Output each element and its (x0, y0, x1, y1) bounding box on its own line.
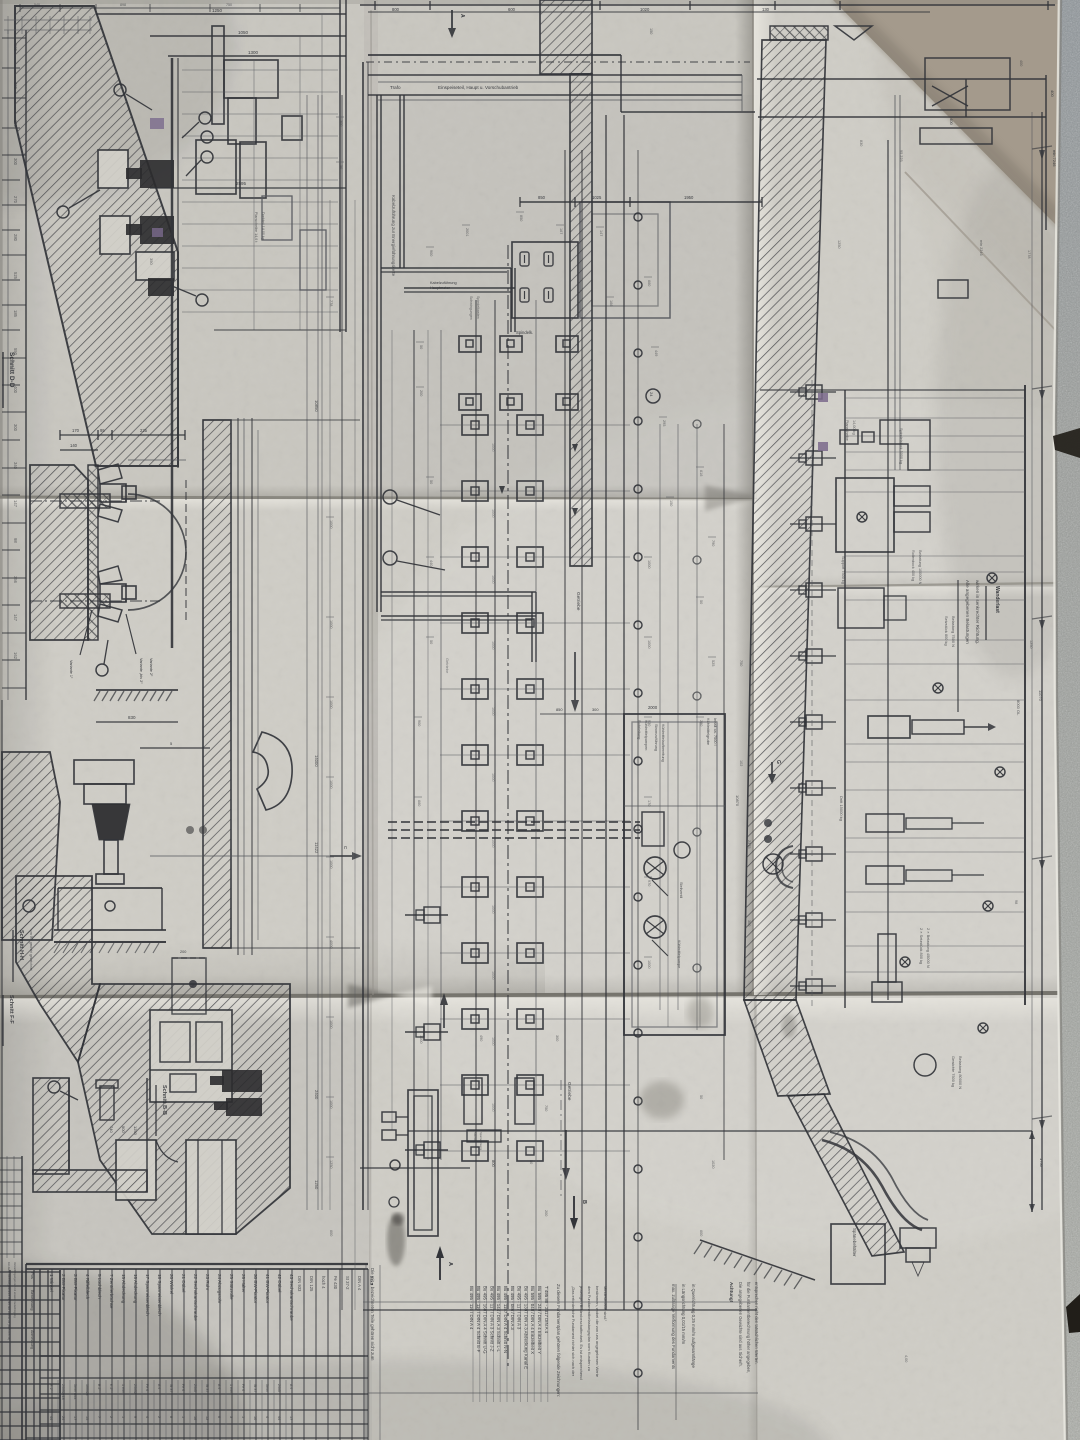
svg-text:Achtung!: Achtung! (729, 1282, 734, 1303)
svg-text:3: 3 (229, 1416, 233, 1418)
svg-text:150: 150 (649, 28, 653, 34)
svg-text:14,00 kg: 14,00 kg (852, 420, 856, 435)
svg-text:24 Abzugsrohr: 24 Abzugsrohr (217, 1274, 222, 1304)
svg-text:Kühlmittelaufbereitung: Kühlmittelaufbereitung (661, 724, 665, 762)
svg-text:17 Spanneisenblech: 17 Spanneisenblech (145, 1274, 150, 1316)
svg-text:50: 50 (699, 1095, 703, 1099)
svg-text:900: 900 (429, 250, 433, 256)
svg-text:Setzstück 800 kg: Setzstück 800 kg (944, 616, 949, 646)
svg-text:Kühlmittelgrube: Kühlmittelgrube (706, 718, 711, 745)
svg-text:800: 800 (491, 1160, 496, 1167)
svg-text:50: 50 (429, 480, 433, 484)
svg-text:778: 778 (329, 300, 333, 306)
svg-text:150: 150 (669, 500, 673, 506)
svg-text:6: 6 (217, 1416, 221, 1418)
svg-text:50: 50 (529, 1160, 533, 1164)
svg-text:167: 167 (559, 228, 563, 234)
svg-text:270: 270 (13, 196, 18, 204)
svg-text:300: 300 (339, 120, 343, 126)
svg-text:3 BW-Fixator: 3 BW-Fixator (73, 1274, 78, 1301)
svg-text:400: 400 (1019, 60, 1023, 66)
svg-text:185: 185 (13, 310, 18, 318)
svg-text:42 Dübel: 42 Dübel (277, 1274, 282, 1292)
svg-text:Schnitt D-D: Schnitt D-D (8, 352, 15, 388)
svg-text:12: 12 (205, 1416, 209, 1420)
svg-text:95 225: 95 225 (899, 150, 903, 162)
svg-text:16: 16 (193, 1416, 197, 1420)
svg-text:1250: 1250 (837, 240, 841, 248)
svg-text:44: 44 (49, 1416, 53, 1420)
svg-text:170: 170 (647, 800, 651, 806)
svg-text:Gewichte 7500 kg: Gewichte 7500 kg (951, 1056, 956, 1087)
svg-text:790: 790 (711, 540, 715, 546)
svg-text:Einspeiseteil, Haupt u. Vorsch: Einspeiseteil, Haupt u. Vorschubantrieb (438, 85, 519, 90)
svg-text:26 Halter: 26 Halter (241, 1274, 246, 1293)
svg-text:A: A (459, 14, 465, 18)
svg-text:449: 449 (654, 350, 658, 356)
svg-text:entsprechen nicht den tatsächl: entsprechen nicht den tatsächlichen Wert… (754, 1282, 759, 1365)
svg-text:Bu 595 - 249 / DIN A 4 Einz: Bu 595 - 249 / DIN A 4 Einzelheit Y (537, 1286, 542, 1354)
svg-text:Spindelstock 5000 kg: Spindelstock 5000 kg (899, 428, 903, 464)
svg-text:1000: 1000 (419, 1035, 423, 1043)
svg-text:Belastung 100000 N: Belastung 100000 N (918, 550, 922, 585)
svg-text:2 × Belastung 45000 N: 2 × Belastung 45000 N (926, 928, 931, 968)
svg-text:600: 600 (329, 1230, 333, 1236)
svg-text:2 BW-Fixator: 2 BW-Fixator (61, 1274, 66, 1301)
svg-text:5 Lochblech: 5 Lochblech (97, 1274, 102, 1299)
svg-text:für die Fundamentberechnung hö: für die Fundamentberechnung höher angege… (746, 1282, 751, 1373)
svg-text:1250: 1250 (1029, 640, 1033, 648)
svg-text:Bu 495 - 1607 DIN A 4 Schni: Bu 495 - 1607 DIN A 4 Schnitt U-G (483, 1286, 488, 1354)
svg-text:102: 102 (739, 760, 743, 766)
svg-text:5mm dick: 5mm dick (73, 1384, 77, 1400)
svg-text:Bu 495 - 117 / DIN A 3: Bu 495 - 117 / DIN A 3 (517, 1286, 522, 1330)
svg-text:Rollenbock 400 kg: Rollenbock 400 kg (911, 550, 915, 581)
svg-text:30 BW-Fixator: 30 BW-Fixator (253, 1274, 258, 1304)
svg-text:Bu 495 - 116 / DIN A 4: Bu 495 - 116 / DIN A 4 (469, 1286, 474, 1330)
svg-text:300: 300 (555, 1035, 559, 1041)
svg-text:1000: 1000 (329, 520, 333, 528)
svg-text:750: 750 (226, 3, 232, 7)
svg-text:min 7246: min 7246 (1052, 150, 1057, 167)
svg-text:16 Abdeckung: 16 Abdeckung (133, 1274, 138, 1304)
svg-text:Variante 1“: Variante 1“ (69, 660, 73, 679)
svg-text:850: 850 (556, 707, 563, 712)
svg-text:50: 50 (699, 600, 703, 604)
svg-text:20 Winkel: 20 Winkel (169, 1274, 174, 1294)
svg-text:850: 850 (519, 215, 523, 221)
svg-text:St 37-2: St 37-2 (345, 1276, 350, 1290)
svg-text:Schnitt B-B: Schnitt B-B (161, 1085, 167, 1115)
svg-text:616: 616 (699, 470, 703, 476)
svg-text:Abmessung: Abmessung (30, 1330, 34, 1349)
svg-text:Fe 430: Fe 430 (333, 1276, 338, 1290)
svg-text:hoch 4: hoch 4 (321, 1276, 326, 1289)
svg-text:930: 930 (647, 720, 651, 726)
svg-text:St 37: St 37 (253, 1384, 257, 1392)
svg-text:44: 44 (277, 1416, 281, 1420)
svg-text:147: 147 (13, 500, 18, 508)
svg-text:Spänebehälter: Spänebehälter (852, 1228, 857, 1257)
svg-text:A 4: A 4 (217, 1384, 221, 1389)
svg-text:B 2": B 2" (97, 1384, 101, 1391)
svg-text:DIN 125: DIN 125 (309, 1276, 314, 1292)
svg-text:Fe 6: Fe 6 (145, 1384, 149, 1391)
svg-text:7: 7 (97, 1416, 101, 1418)
svg-text:Fe 6: Fe 6 (181, 1384, 185, 1391)
svg-text:300: 300 (747, 920, 751, 926)
svg-text:Getriebe: Getriebe (445, 658, 450, 674)
svg-text:1: 1 (181, 1416, 185, 1418)
svg-text:Bu 595 - 048 / DIN A 4 Einz: Bu 595 - 048 / DIN A 4 Einzelheit X (530, 1286, 535, 1354)
svg-text:11070: 11070 (1038, 690, 1043, 702)
svg-text:Alle angegebenen Belastungen: Alle angegebenen Belastungen (965, 580, 970, 644)
svg-text:10: 10 (253, 1416, 257, 1420)
svg-text:4,00: 4,00 (904, 1355, 908, 1362)
svg-text:R 2": R 2" (49, 1384, 53, 1392)
svg-text:21 Dübel: 21 Dübel (181, 1274, 186, 1292)
svg-text:St 37: St 37 (169, 1384, 173, 1392)
svg-text:300: 300 (13, 158, 18, 166)
svg-text:15 Abdeckung: 15 Abdeckung (121, 1274, 126, 1304)
svg-text:98: 98 (13, 538, 18, 543)
svg-text:1250: 1250 (314, 1180, 319, 1190)
svg-text:850: 850 (538, 195, 546, 200)
svg-text:14000: 14000 (314, 755, 319, 767)
svg-text:Spindelk.: Spindelk. (516, 330, 533, 335)
svg-text:1000: 1000 (647, 640, 651, 648)
svg-text:900: 900 (417, 720, 421, 726)
svg-text:Getriebe: Getriebe (566, 1082, 572, 1101)
svg-text:200: 200 (544, 1210, 548, 1216)
svg-text:1 mm: 1 mm (229, 1384, 233, 1393)
svg-text:in Längsrichtung 0,01/15 mm/: in Längsrichtung 0,01/15 mm/m (681, 1284, 686, 1345)
svg-text:A 4: A 4 (289, 1384, 293, 1389)
svg-text:660: 660 (417, 800, 421, 806)
svg-text:Schnitt H-H: Schnitt H-H (18, 930, 24, 960)
svg-text:1250: 1250 (329, 1160, 333, 1168)
svg-text:41 BW-Fixator: 41 BW-Fixator (265, 1274, 270, 1304)
svg-text:280: 280 (13, 234, 18, 242)
svg-text:600: 600 (508, 7, 516, 12)
svg-text:147: 147 (13, 614, 18, 622)
svg-text:525: 525 (13, 272, 18, 280)
svg-text:DIN 933: DIN 933 (297, 1276, 302, 1292)
svg-text:Bu 495 - 1397 DIN A 3 Abdeck: Bu 495 - 1397 DIN A 3 Abdeckung Kanal E (523, 1286, 528, 1369)
svg-text:740: 740 (109, 1126, 114, 1133)
svg-text:600: 600 (699, 1230, 703, 1236)
svg-text:95: 95 (100, 428, 105, 433)
svg-text:800: 800 (392, 7, 400, 12)
svg-text:Bu 495 - 117 / DIN A 3 Schn: Bu 495 - 117 / DIN A 3 Schnitt J-Z (489, 1286, 494, 1352)
svg-text:Stecker: Stecker (473, 1132, 477, 1142)
svg-text:1: 1 (241, 1416, 245, 1418)
svg-text:Inhalt ca. 7500 l: Inhalt ca. 7500 l (713, 718, 718, 746)
svg-text:1: 1 (121, 1416, 125, 1418)
svg-text:K 2": K 2" (109, 1384, 113, 1391)
svg-text:Pos: Pos (30, 1272, 35, 1279)
svg-text:A 4: A 4 (157, 1384, 161, 1389)
svg-text:1 mm: 1 mm (121, 1384, 125, 1393)
svg-text:Spannelemente: Spannelemente (479, 1132, 483, 1151)
svg-text:440: 440 (429, 560, 433, 566)
svg-text:43 Sechskantschraube: 43 Sechskantschraube (289, 1274, 294, 1321)
svg-text:830: 830 (859, 140, 863, 146)
svg-text:166: 166 (609, 300, 613, 306)
svg-text:7 Zentrierbüchse: 7 Zentrierbüchse (109, 1274, 114, 1309)
svg-text:2001: 2001 (465, 228, 469, 236)
svg-text:Kabelzuführung zur Energieführ: Kabelzuführung zur Energieführungskette (391, 195, 396, 277)
svg-text:1000: 1000 (329, 700, 333, 708)
svg-text:Vervielfältigungen nur mit uns: Vervielfältigungen nur mit unserer Geneh… (13, 1262, 17, 1318)
svg-text:1250: 1250 (212, 8, 223, 13)
svg-text:Variante 2“: Variante 2“ (149, 658, 153, 677)
svg-text:Schwingungen: Schwingungen (469, 296, 473, 320)
svg-text:Support 7500 kg: Support 7500 kg (841, 556, 845, 584)
svg-text:24x32: 24x32 (133, 1384, 137, 1394)
svg-text:295: 295 (662, 420, 666, 426)
svg-text:Belastung 80000 N: Belastung 80000 N (958, 1056, 963, 1089)
svg-text:4 Riffelblech: 4 Riffelblech (85, 1274, 90, 1300)
svg-text:970: 970 (647, 880, 651, 886)
svg-text:1000: 1000 (647, 960, 651, 968)
svg-text:2: 2 (109, 1416, 113, 1418)
svg-text:660: 660 (647, 280, 651, 286)
svg-text:Wanderlast: Wanderlast (994, 586, 1000, 613)
svg-text:2375: 2375 (747, 840, 751, 848)
svg-text:Getriebe: Getriebe (575, 592, 581, 611)
svg-text:1778: 1778 (1027, 250, 1031, 258)
svg-text:18 Spanneisenblech: 18 Spanneisenblech (157, 1274, 162, 1316)
svg-text:Bu 495 - 1157 DIN A 4 Schni: Bu 495 - 1157 DIN A 4 Schnitt N-N (503, 1286, 508, 1353)
svg-text:300: 300 (13, 424, 18, 432)
svg-text:340: 340 (13, 462, 18, 470)
svg-text:Planscheibe 14,6 t: Planscheibe 14,6 t (254, 212, 258, 242)
svg-text:4: 4 (265, 1416, 269, 1418)
svg-text:24: 24 (649, 392, 654, 397)
svg-text:300: 300 (592, 707, 599, 712)
svg-text:750: 750 (739, 660, 743, 666)
svg-text:Planscheibe: Planscheibe (845, 420, 849, 441)
svg-text:200: 200 (180, 950, 186, 954)
svg-text:Rohrleitung: Rohrleitung (637, 720, 641, 739)
svg-text:1950: 1950 (684, 195, 694, 200)
svg-text:Schnitt F-F: Schnitt F-F (8, 995, 14, 1024)
svg-text:Bu 495 - 144 / DIN A 3 Schn: Bu 495 - 144 / DIN A 3 Schnitt L-L (496, 1286, 501, 1352)
svg-text:147: 147 (599, 230, 603, 236)
svg-text:Stellventil: Stellventil (679, 882, 683, 898)
svg-text:2: 2 (157, 1416, 161, 1418)
svg-text:2000: 2000 (648, 705, 658, 710)
svg-text:24x3: 24x3 (193, 1384, 197, 1392)
svg-text:1050: 1050 (238, 30, 249, 35)
svg-text:280: 280 (699, 720, 703, 726)
svg-text:2400: 2400 (314, 1090, 319, 1100)
svg-text:4: 4 (145, 1416, 149, 1418)
svg-text:24x3: 24x3 (277, 1384, 281, 1392)
svg-text:1000: 1000 (329, 1020, 333, 1028)
svg-text:17: 17 (73, 1416, 77, 1420)
svg-text:Trafo: Trafo (390, 85, 401, 90)
svg-text:24x32x18: 24x32x18 (61, 1384, 65, 1400)
svg-text:Die angegebenen Gewichte sind: Die angegebenen Gewichte sind aus Sicher… (738, 1282, 743, 1367)
svg-text:400: 400 (949, 118, 954, 125)
svg-text:8000 OL: 8000 OL (1016, 700, 1021, 716)
svg-text:225: 225 (140, 428, 148, 433)
svg-text:25 Stützrolle: 25 Stützrolle (229, 1274, 234, 1300)
svg-text:1000: 1000 (329, 860, 333, 868)
svg-text:Belastung 7500 N: Belastung 7500 N (951, 616, 956, 647)
svg-text:525: 525 (711, 660, 715, 666)
svg-text:2595: 2595 (236, 181, 247, 186)
svg-text:1020: 1020 (711, 1160, 715, 1168)
svg-text:Hauptmotor: Hauptmotor (430, 286, 451, 290)
svg-text:1020: 1020 (640, 7, 650, 12)
svg-text:in Querrichtung 0,25 mm/m: in Querrichtung 0,25 mm/m aufgesamtlänge (691, 1284, 696, 1368)
svg-text:Die mit ● bezeichneten Teile g: Die mit ● bezeichneten Teile gehören nic… (370, 1268, 375, 1361)
svg-text:140: 140 (70, 443, 78, 448)
svg-text:1750: 1750 (1039, 1158, 1044, 1168)
svg-text:130: 130 (762, 7, 770, 12)
svg-text:Stromzuführung: Stromzuführung (654, 724, 658, 751)
svg-text:100x2x: 100x2x (85, 1384, 89, 1396)
svg-text:24: 24 (61, 1416, 65, 1420)
svg-text:Bu 495 - 086 / DIN A 3: Bu 495 - 086 / DIN A 3 (510, 1286, 515, 1330)
svg-text:50: 50 (429, 640, 433, 644)
svg-text:1250: 1250 (133, 1126, 138, 1136)
svg-text:G: G (775, 760, 781, 764)
svg-text:200: 200 (419, 390, 423, 396)
svg-text:Benennung: Benennung (30, 1290, 35, 1310)
svg-text:1000: 1000 (329, 780, 333, 788)
svg-text:1025: 1025 (592, 195, 602, 200)
svg-text:DIN A 4: DIN A 4 (357, 1276, 362, 1291)
svg-text:162: 162 (13, 652, 18, 660)
svg-text:1000: 1000 (647, 560, 651, 568)
svg-text:98: 98 (1014, 900, 1018, 904)
svg-text:A: A (447, 1262, 453, 1266)
svg-text:max. zulässige Verformung des: max. zulässige Verformung des Fundaments (671, 1284, 676, 1369)
svg-text:350: 350 (149, 258, 154, 265)
svg-text:170: 170 (72, 428, 80, 433)
svg-text:Variante „bis 2“: Variante „bis 2“ (139, 658, 143, 684)
svg-text:10850: 10850 (314, 400, 319, 412)
svg-text:22 Sechskantschraube: 22 Sechskantschraube (193, 1274, 198, 1321)
svg-text:10870: 10870 (735, 795, 740, 807)
svg-text:B: B (581, 1200, 587, 1204)
svg-text:2 × Setzstück 800 kg: 2 × Setzstück 800 kg (919, 928, 924, 964)
svg-text:1 Winkel: 1 Winkel (49, 1274, 54, 1292)
svg-text:400: 400 (1050, 90, 1055, 97)
svg-text:50: 50 (339, 165, 343, 169)
svg-text:1300: 1300 (248, 50, 259, 55)
svg-text:15: 15 (85, 1416, 89, 1420)
svg-text:356: 356 (13, 576, 18, 584)
svg-text:23 Rohr: 23 Rohr (205, 1274, 210, 1291)
svg-text:11422: 11422 (314, 842, 319, 854)
svg-text:5mm: 5mm (265, 1384, 269, 1392)
svg-text:830: 830 (128, 715, 136, 720)
svg-text:750: 750 (544, 1105, 548, 1111)
svg-text:898: 898 (120, 3, 126, 7)
svg-text:um 90° gedreht gezeichnet: um 90° gedreht gezeichnet (29, 930, 33, 971)
svg-text:min 2246: min 2246 (979, 240, 983, 256)
svg-text:50: 50 (419, 345, 423, 349)
svg-text:1000: 1000 (329, 620, 333, 628)
svg-text:Fe 6: Fe 6 (241, 1384, 245, 1391)
svg-text:dem Fundamentbelastungsplan vo: dem Fundamentbelastungsplan vom Kunden z… (587, 1286, 592, 1371)
svg-text:wirken in senkrechter Richtung: wirken in senkrechter Richtung. (975, 580, 980, 644)
svg-text:490: 490 (479, 1035, 483, 1041)
svg-text:Zu diesem Fundamentplan gehöre: Zu diesem Fundamentplan gehören folgende… (556, 1284, 561, 1397)
svg-text:540: 540 (34, 3, 40, 7)
svg-text:Kühlmittelpumpe: Kühlmittelpumpe (677, 940, 681, 968)
svg-text:St 37: St 37 (205, 1384, 209, 1392)
svg-text:17: 17 (289, 1416, 293, 1420)
svg-text:1000: 1000 (329, 1100, 333, 1108)
svg-text:„Das erforderliche Fundament r: „Das erforderliche Fundament richtet sic… (571, 1286, 576, 1377)
svg-text:bestimmen, wobei die von uns a: bestimmen, wobei die von uns angegebenen… (595, 1286, 600, 1378)
svg-text:9: 9 (133, 1416, 137, 1418)
svg-text:Kabelzuführung: Kabelzuführung (430, 281, 457, 285)
svg-text:4000: 4000 (329, 940, 333, 948)
svg-text:900: 900 (121, 1126, 126, 1133)
svg-text:8: 8 (169, 1416, 173, 1418)
svg-text:Drift 15000 kg: Drift 15000 kg (839, 796, 844, 821)
